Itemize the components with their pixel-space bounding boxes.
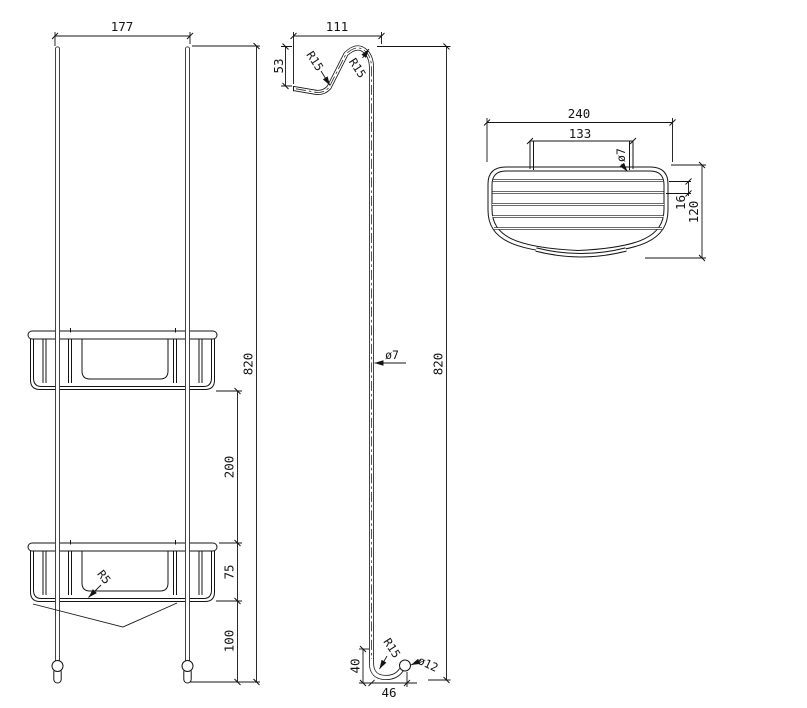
dim-top-wire-dia: ø7 bbox=[614, 148, 628, 162]
dim-side-height: 820 bbox=[431, 353, 446, 376]
left-rail-ball bbox=[52, 661, 63, 672]
dim-side-foot-height-group: 40 bbox=[348, 649, 370, 683]
right-rail bbox=[182, 49, 193, 683]
dim-front-basket-spacing: 200 bbox=[222, 456, 237, 479]
dim-side-wire-dia: ø7 bbox=[385, 348, 399, 362]
dim-side-foot-depth: 46 bbox=[381, 685, 396, 700]
rim-inner bbox=[492, 171, 664, 251]
tube-centerline bbox=[296, 48, 372, 659]
dim-side-hook-drop-group: 53 bbox=[271, 47, 292, 87]
dim-side-foot-radius: R15 bbox=[380, 635, 403, 660]
dim-side-radius-b: R15 bbox=[346, 55, 369, 80]
dim-side-wire-dia-group: ø7 bbox=[375, 348, 407, 363]
dim-top-wire-dia-group: ø7 bbox=[614, 148, 628, 171]
dim-front-bottom-offset: 100 bbox=[222, 630, 237, 653]
dim-front-spacing-group: 200 75 100 bbox=[216, 391, 242, 682]
dim-front-basket-height: 75 bbox=[222, 564, 237, 579]
left-rail bbox=[52, 49, 63, 683]
wire-caddy-drawing: R5 177 820 200 75 100 bbox=[0, 0, 807, 708]
dim-top-width: 240 bbox=[568, 106, 591, 121]
dim-side-foot-height: 40 bbox=[348, 658, 363, 673]
dim-side-ball-dia: ø12 bbox=[416, 653, 441, 674]
dim-front-corner-radius: R5 bbox=[94, 567, 114, 587]
right-rail-ball bbox=[182, 661, 193, 672]
top-view: 133 240 ø7 16 bbox=[487, 106, 706, 258]
dim-front-width-group: 177 bbox=[55, 19, 190, 46]
dim-front-height-group: 820 bbox=[190, 46, 260, 682]
dim-side-hook-depth: 111 bbox=[326, 19, 349, 34]
dim-front-width: 177 bbox=[111, 19, 134, 34]
dim-side-hook-drop: 53 bbox=[271, 58, 286, 73]
dim-front-height: 820 bbox=[241, 353, 256, 376]
technical-drawing-page: R5 177 820 200 75 100 bbox=[0, 0, 807, 708]
dim-side-radius-a: R15 bbox=[303, 48, 326, 73]
r15a-leader bbox=[321, 71, 330, 86]
front-view: R5 177 820 200 75 100 bbox=[28, 19, 260, 683]
dim-top-depth-group: 120 bbox=[645, 165, 706, 258]
foot-ball bbox=[400, 660, 411, 671]
mount-protrusion: 133 bbox=[530, 126, 633, 170]
dim-top-hook-span: 133 bbox=[569, 126, 592, 141]
side-view: 111 53 R15 R15 ø7 820 40 bbox=[271, 19, 451, 700]
basket-wires bbox=[492, 181, 664, 229]
dim-top-depth: 120 bbox=[686, 201, 701, 224]
front-lip-leader bbox=[33, 603, 177, 627]
r15c-leader bbox=[380, 656, 388, 669]
